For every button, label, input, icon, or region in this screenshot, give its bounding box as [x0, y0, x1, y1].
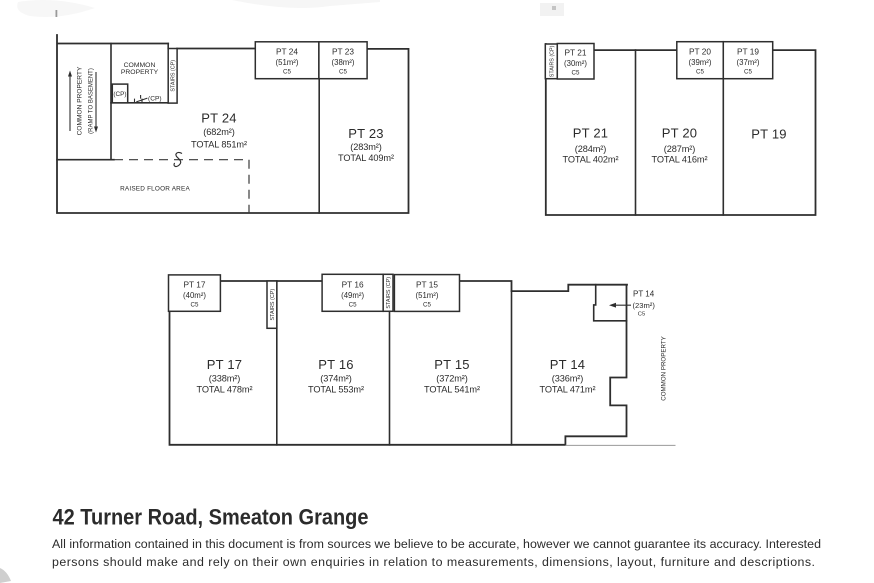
svg-text:C5: C5 — [696, 69, 704, 76]
svg-text:TOTAL 851m²: TOTAL 851m² — [191, 140, 247, 150]
svg-text:TOTAL 553m²: TOTAL 553m² — [308, 385, 364, 395]
svg-text:COMMON: COMMON — [124, 62, 156, 69]
svg-text:TOTAL 416m²: TOTAL 416m² — [652, 155, 708, 165]
svg-text:(682m²): (682m²) — [203, 127, 235, 137]
svg-text:PT 24: PT 24 — [276, 46, 298, 56]
svg-text:STAIRS (CP): STAIRS (CP) — [549, 45, 555, 77]
svg-text:C5: C5 — [423, 301, 431, 308]
svg-text:PT 24: PT 24 — [201, 111, 236, 126]
svg-text:C5: C5 — [638, 312, 645, 318]
svg-text:(372m²): (372m²) — [436, 374, 468, 384]
svg-text:All information contained in t: All information contained in this docume… — [52, 537, 821, 551]
svg-text:C5: C5 — [572, 69, 580, 76]
svg-text:C5: C5 — [191, 301, 199, 308]
svg-text:persons should make and rely o: persons should make and rely on their ow… — [52, 555, 815, 569]
svg-text:(37m²): (37m²) — [737, 58, 760, 67]
svg-text:(RAMP TO BASEMENT): (RAMP TO BASEMENT) — [88, 68, 94, 134]
svg-text:PT 16: PT 16 — [318, 357, 353, 372]
svg-text:PT 15: PT 15 — [416, 279, 438, 289]
svg-text:(39m²): (39m²) — [689, 58, 712, 67]
svg-text:PROPERTY: PROPERTY — [121, 69, 159, 76]
svg-text:STAIRS (CP): STAIRS (CP) — [386, 277, 392, 309]
svg-text:(336m²): (336m²) — [552, 374, 584, 384]
svg-text:(49m²): (49m²) — [341, 291, 364, 300]
svg-text:(38m²): (38m²) — [332, 58, 355, 67]
svg-text:TOTAL 402m²: TOTAL 402m² — [563, 155, 619, 165]
svg-text:PT 19: PT 19 — [751, 127, 786, 142]
svg-text:PT 19: PT 19 — [737, 46, 759, 56]
svg-text:PT 21: PT 21 — [573, 126, 608, 141]
svg-text:PT 21: PT 21 — [565, 48, 587, 58]
svg-text:C5: C5 — [339, 69, 347, 76]
svg-text:TOTAL 409m²: TOTAL 409m² — [338, 153, 394, 163]
svg-text:(51m²): (51m²) — [276, 58, 299, 67]
svg-text:PT 17: PT 17 — [207, 357, 242, 372]
svg-text:PT 17: PT 17 — [184, 279, 206, 289]
svg-text:C5: C5 — [283, 69, 291, 76]
svg-text:(40m²): (40m²) — [183, 291, 206, 300]
svg-text:(51m²): (51m²) — [416, 291, 439, 300]
svg-text:PT 20: PT 20 — [662, 126, 697, 141]
svg-text:STAIRS (CP): STAIRS (CP) — [270, 289, 276, 321]
svg-text:TOTAL 478m²: TOTAL 478m² — [197, 385, 253, 395]
svg-text:(374m²): (374m²) — [320, 374, 352, 384]
svg-text:PT 14: PT 14 — [550, 357, 585, 372]
svg-text:(284m²): (284m²) — [575, 144, 607, 154]
svg-text:C5: C5 — [744, 69, 752, 76]
svg-text:(287m²): (287m²) — [664, 144, 696, 154]
svg-text:C5: C5 — [349, 301, 357, 308]
svg-text:RAISED FLOOR AREA: RAISED FLOOR AREA — [120, 185, 190, 192]
svg-text:(23m²): (23m²) — [633, 301, 656, 310]
svg-text:(CP): (CP) — [113, 91, 126, 98]
svg-text:PT 23: PT 23 — [348, 126, 383, 141]
svg-text:TOTAL 541m²: TOTAL 541m² — [424, 385, 480, 395]
svg-text:PT 14: PT 14 — [633, 290, 655, 299]
svg-text:(283m²): (283m²) — [350, 142, 382, 152]
svg-text:PT 16: PT 16 — [342, 279, 364, 289]
svg-text:42 Turner Road, Smeaton Grange: 42 Turner Road, Smeaton Grange — [53, 505, 369, 530]
svg-text:COMMON PROPERTY: COMMON PROPERTY — [661, 336, 668, 401]
svg-text:COMMON PROPERTY: COMMON PROPERTY — [76, 66, 83, 135]
svg-text:PT 15: PT 15 — [434, 357, 469, 372]
svg-text:(338m²): (338m²) — [209, 374, 241, 384]
svg-text:STAIRS (CP): STAIRS (CP) — [171, 60, 177, 92]
svg-text:(30m²): (30m²) — [564, 59, 587, 68]
svg-text:PT 23: PT 23 — [332, 46, 354, 56]
svg-text:PT 20: PT 20 — [689, 46, 711, 56]
svg-text:(CP): (CP) — [148, 96, 162, 103]
svg-text:TOTAL 471m²: TOTAL 471m² — [540, 385, 596, 395]
